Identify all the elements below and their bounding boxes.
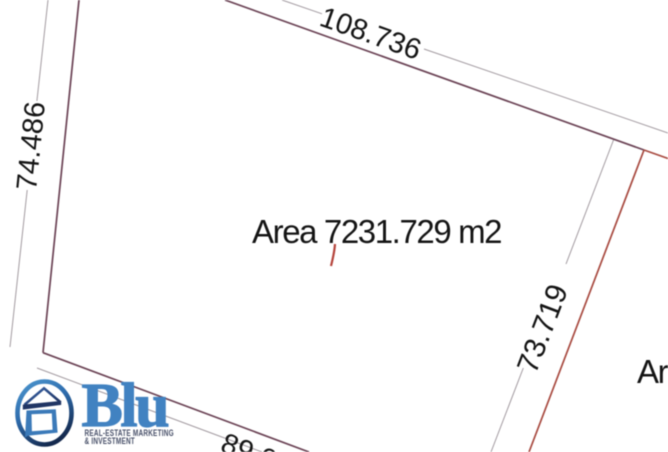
svg-text:Area 7231.729 m2: Area 7231.729 m2 [252, 213, 501, 250]
svg-text:Area: Area [637, 353, 668, 390]
svg-text:& INVESTMENT: & INVESTMENT [85, 436, 135, 446]
